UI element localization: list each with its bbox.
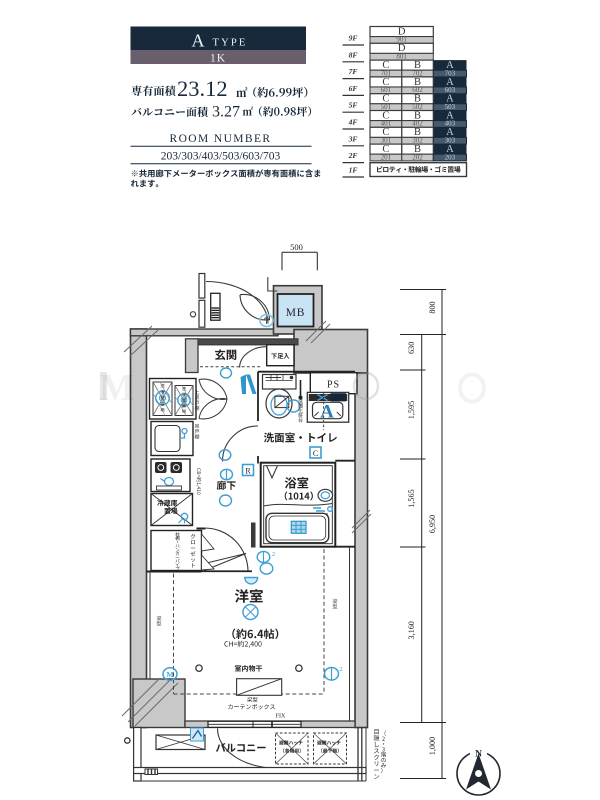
svg-text:MB: MB	[286, 307, 306, 319]
svg-text:2: 2	[339, 666, 342, 673]
svg-text:201: 201	[381, 153, 392, 161]
svg-text:R: R	[245, 467, 251, 476]
svg-text:3.27: 3.27	[212, 104, 240, 121]
svg-text:PS: PS	[327, 380, 340, 391]
svg-text:TYPE: TYPE	[212, 38, 247, 49]
svg-text:2F: 2F	[348, 151, 358, 160]
svg-text:3,160: 3,160	[407, 621, 416, 639]
svg-text:A: A	[320, 402, 334, 423]
svg-text:1,595: 1,595	[407, 401, 416, 419]
svg-text:203: 203	[445, 153, 456, 161]
svg-text:203/303/403/503/603/703: 203/303/403/503/603/703	[161, 151, 281, 163]
svg-text:500: 500	[290, 242, 303, 252]
svg-text:M: M	[166, 670, 173, 679]
svg-text:23.12: 23.12	[177, 76, 228, 101]
svg-text:1F: 1F	[349, 166, 358, 175]
svg-text:5F: 5F	[349, 101, 358, 110]
svg-text:FIX: FIX	[276, 714, 286, 720]
svg-text:8F: 8F	[349, 50, 358, 59]
svg-text:1,565: 1,565	[407, 489, 416, 507]
svg-text:630: 630	[407, 342, 416, 354]
svg-text:9F: 9F	[349, 34, 358, 43]
svg-text:3F: 3F	[348, 134, 358, 143]
svg-text:6F: 6F	[349, 84, 358, 93]
svg-text:800: 800	[428, 301, 437, 313]
svg-text:1,000: 1,000	[428, 737, 437, 755]
svg-text:6,950: 6,950	[428, 515, 437, 533]
svg-text:4F: 4F	[348, 118, 358, 127]
svg-text:1K: 1K	[210, 53, 226, 65]
svg-text:202: 202	[412, 153, 423, 161]
svg-text:A: A	[192, 31, 205, 51]
svg-text:801: 801	[396, 53, 407, 61]
svg-text:ROOM NUMBER: ROOM NUMBER	[170, 133, 272, 145]
svg-text:M: M	[99, 367, 135, 409]
svg-text:C: C	[313, 449, 318, 458]
svg-text:2: 2	[272, 551, 275, 558]
svg-text:7F: 7F	[349, 67, 358, 76]
